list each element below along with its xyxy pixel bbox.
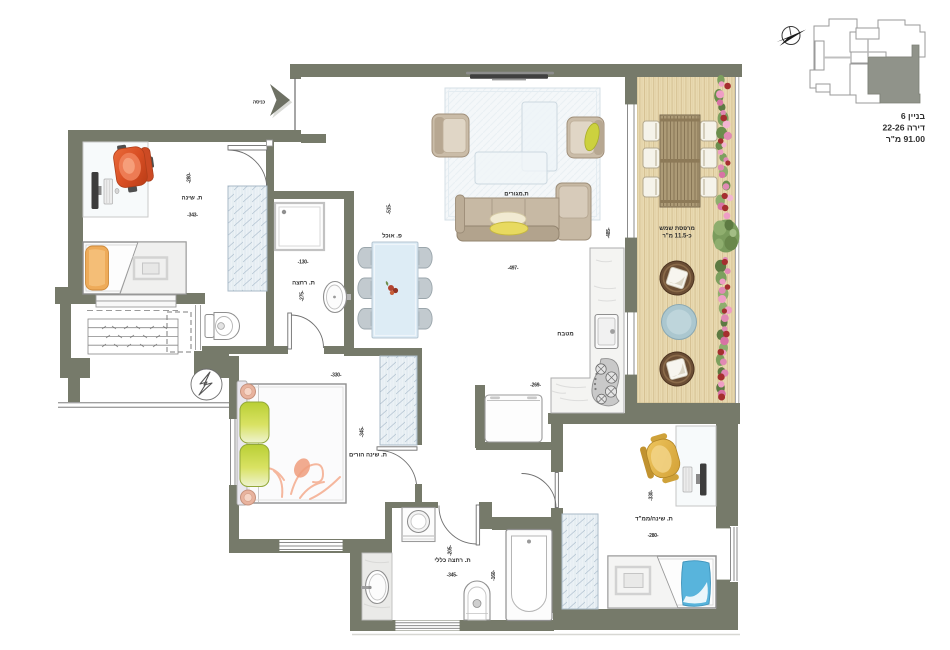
svg-text:ת. שינה: ת. שינה — [182, 196, 203, 202]
svg-text:מטבח: מטבח — [557, 332, 574, 338]
svg-text:-515-: -515- — [387, 203, 393, 214]
svg-text:91.00 מ"ר: 91.00 מ"ר — [886, 134, 925, 144]
svg-text:-280-: -280- — [187, 172, 193, 183]
svg-text:-160-: -160- — [491, 570, 497, 581]
svg-text:-485-: -485- — [606, 227, 612, 238]
svg-text:-205-: -205- — [448, 545, 454, 556]
svg-text:-343-: -343- — [187, 213, 198, 219]
svg-text:בניין 6: בניין 6 — [901, 111, 926, 121]
svg-text:-130-: -130- — [298, 260, 309, 266]
svg-text:ת.מגורים: ת.מגורים — [504, 192, 528, 198]
svg-text:ת. שינה הורים: ת. שינה הורים — [349, 453, 387, 459]
svg-text:מרפסת שמש: מרפסת שמש — [659, 226, 695, 232]
svg-text:ת. רחצה כללי: ת. רחצה כללי — [434, 556, 470, 564]
svg-text:ת. רחצה: ת. רחצה — [292, 281, 315, 287]
svg-text:דירה 22-26: דירה 22-26 — [883, 123, 925, 133]
svg-text:-280-: -280- — [648, 533, 659, 539]
svg-text:כ-11.5 מ"ר: כ-11.5 מ"ר — [662, 234, 691, 240]
svg-text:-269-: -269- — [530, 383, 541, 389]
svg-text:פ. אוכל: פ. אוכל — [382, 232, 402, 240]
svg-text:כניסה: כניסה — [253, 100, 266, 106]
svg-text:-497-: -497- — [508, 266, 519, 272]
svg-text:-330-: -330- — [649, 490, 655, 501]
svg-text:-345-: -345- — [447, 573, 458, 579]
svg-text:-275-: -275- — [300, 290, 306, 301]
svg-text:ת. שינה/ממ"ד: ת. שינה/ממ"ד — [635, 517, 673, 523]
svg-text:-345-: -345- — [360, 426, 366, 437]
svg-text:-330-: -330- — [331, 373, 342, 379]
